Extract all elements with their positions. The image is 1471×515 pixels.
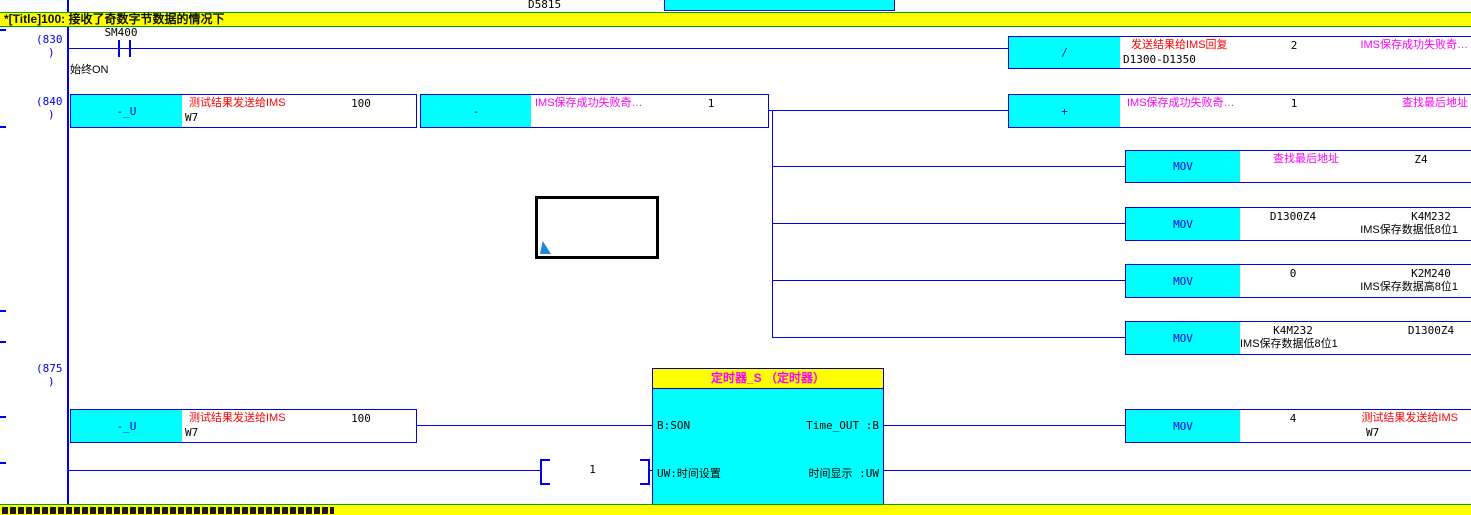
branch-line bbox=[772, 337, 1125, 338]
rung-line bbox=[69, 470, 540, 471]
title-statement-bar[interactable]: *[Title]100: 接收了奇数字节数据的情况下 bbox=[0, 12, 1471, 27]
fb-input-bson: B:SON bbox=[657, 419, 690, 432]
operand-value: 4 bbox=[1243, 412, 1343, 425]
timer-function-block[interactable]: 定时器_S （定时器） B:SON Time_OUT :B UW:时间设置 时间… bbox=[652, 368, 884, 514]
operand-comment: 测试结果发送给IMS bbox=[189, 412, 286, 425]
edit-cursor[interactable] bbox=[535, 196, 659, 259]
operand-device: D1300-D1350 bbox=[1123, 53, 1196, 66]
operand-device: K4M232 bbox=[1401, 210, 1461, 223]
fb-input-time-setting: UW:时间设置 bbox=[657, 465, 721, 481]
rung-number-840-close: ) bbox=[48, 109, 55, 121]
add-instruction-block[interactable]: + IMS保存成功失败奇… 1 查找最后地址 bbox=[1008, 94, 1471, 128]
rung-line bbox=[882, 425, 1125, 426]
cursor-flag-icon bbox=[540, 241, 551, 254]
edge-mark bbox=[0, 462, 6, 464]
instruction-mnemonic: + bbox=[1009, 95, 1120, 127]
top-partial-device: D5815 bbox=[528, 0, 561, 11]
rung-line bbox=[767, 110, 1008, 111]
branch-line bbox=[772, 110, 773, 338]
branch-line bbox=[772, 166, 1125, 167]
edge-mark bbox=[0, 29, 6, 31]
operand-value: 100 bbox=[321, 97, 401, 110]
operand-label: 查找最后地址 bbox=[1349, 97, 1468, 110]
function-block-title: 定时器_S （定时器） bbox=[653, 369, 883, 389]
edge-mark bbox=[0, 341, 6, 343]
instruction-mnemonic: MOV bbox=[1126, 410, 1240, 442]
contact-open-icon[interactable] bbox=[118, 40, 120, 57]
operand-value: 0 bbox=[1243, 267, 1343, 280]
instruction-mnemonic: - bbox=[421, 95, 531, 127]
division-instruction-block[interactable]: / 发送结果给IMS回复 D1300-D1350 2 IMS保存成功失败奇… bbox=[1008, 36, 1471, 69]
operand-value: 1 bbox=[671, 97, 751, 110]
mov-instruction-block[interactable]: MOV K4M232 IMS保存数据低8位1 D1300Z4 bbox=[1125, 321, 1471, 355]
instruction-mnemonic: MOV bbox=[1126, 322, 1240, 354]
function-block-body bbox=[653, 389, 883, 513]
rung-line bbox=[415, 425, 652, 426]
rung-number-830: (830 bbox=[36, 34, 63, 46]
top-partial-coil-block[interactable] bbox=[664, 0, 895, 11]
clipped-statement-text bbox=[2, 507, 334, 514]
bottom-statement-bar[interactable] bbox=[0, 504, 1471, 515]
sub-u-instruction-block[interactable]: -_U 测试结果发送给IMS W7 100 bbox=[70, 409, 417, 443]
mov-instruction-block[interactable]: MOV 查找最后地址 Z4 bbox=[1125, 150, 1471, 183]
operand-value: 100 bbox=[321, 412, 401, 425]
operand-comment: 发送结果给IMS回复 bbox=[1131, 39, 1228, 52]
rung-number-830-close: ) bbox=[48, 47, 55, 59]
operand-device: Z4 bbox=[1391, 153, 1451, 166]
rung-line bbox=[69, 48, 1008, 49]
timer-setpoint-value[interactable]: 1 bbox=[565, 463, 620, 476]
operand-device: W7 bbox=[185, 111, 198, 124]
rung-number-875: (875 bbox=[36, 363, 63, 375]
operand-comment: IMS保存数据高8位1 bbox=[1360, 281, 1458, 294]
edge-mark bbox=[0, 310, 6, 312]
contact-open-icon[interactable] bbox=[129, 40, 131, 57]
constant-bracket-left bbox=[540, 459, 550, 485]
instruction-mnemonic: -_U bbox=[71, 410, 182, 442]
operand-device: W7 bbox=[1366, 426, 1379, 439]
ladder-editor: D5815 *[Title]100: 接收了奇数字节数据的情况下 (830 ) … bbox=[0, 0, 1471, 515]
operand-device: D1300Z4 bbox=[1401, 324, 1461, 337]
constant-bracket-right bbox=[640, 459, 650, 485]
operand-value: 2 bbox=[1264, 39, 1324, 52]
instruction-mnemonic: -_U bbox=[71, 95, 182, 127]
instruction-mnemonic: MOV bbox=[1126, 208, 1240, 240]
operand-device: K4M232 bbox=[1243, 324, 1343, 337]
operand-comment: IMS保存数据低8位1 bbox=[1240, 338, 1338, 351]
operand-device: D1300Z4 bbox=[1243, 210, 1343, 223]
fb-output-timeout: Time_OUT :B bbox=[806, 419, 879, 432]
instruction-mnemonic: MOV bbox=[1126, 265, 1240, 297]
operand-device: W7 bbox=[185, 426, 198, 439]
operand-label: IMS保存成功失败奇… bbox=[1127, 97, 1235, 110]
mov-instruction-block[interactable]: MOV D1300Z4 K4M232 IMS保存数据低8位1 bbox=[1125, 207, 1471, 241]
instruction-mnemonic: MOV bbox=[1126, 151, 1240, 182]
edge-mark bbox=[0, 416, 6, 418]
rung-number-875-close: ) bbox=[48, 376, 55, 388]
sub-instruction-block[interactable]: - IMS保存成功失败奇… 1 bbox=[420, 94, 769, 128]
sub-u-instruction-block[interactable]: -_U 测试结果发送给IMS W7 100 bbox=[70, 94, 417, 128]
rung-line bbox=[882, 470, 1471, 471]
operand-comment: 测试结果发送给IMS bbox=[1361, 412, 1458, 425]
operand-label: IMS保存成功失败奇… bbox=[535, 97, 643, 110]
operand-comment: 测试结果发送给IMS bbox=[189, 97, 286, 110]
operand-comment: IMS保存数据低8位1 bbox=[1360, 224, 1458, 237]
fb-output-time-display: 时间显示 :UW bbox=[809, 465, 880, 481]
operand-label: 查找最后地址 bbox=[1256, 153, 1356, 166]
branch-line bbox=[772, 223, 1125, 224]
contact-device-label: SM400 bbox=[98, 27, 144, 39]
rung-number-840: (840 bbox=[36, 96, 63, 108]
mov-instruction-block[interactable]: MOV 4 测试结果发送给IMS W7 bbox=[1125, 409, 1471, 443]
contact-comment: 始终ON bbox=[70, 64, 109, 76]
operand-value: 1 bbox=[1264, 97, 1324, 110]
mov-instruction-block[interactable]: MOV 0 K2M240 IMS保存数据高8位1 bbox=[1125, 264, 1471, 298]
instruction-mnemonic: / bbox=[1009, 37, 1120, 68]
left-power-rail bbox=[67, 0, 69, 505]
operand-label: IMS保存成功失败奇… bbox=[1349, 39, 1468, 52]
operand-device: K2M240 bbox=[1401, 267, 1461, 280]
edge-mark bbox=[0, 126, 6, 128]
branch-line bbox=[772, 280, 1125, 281]
